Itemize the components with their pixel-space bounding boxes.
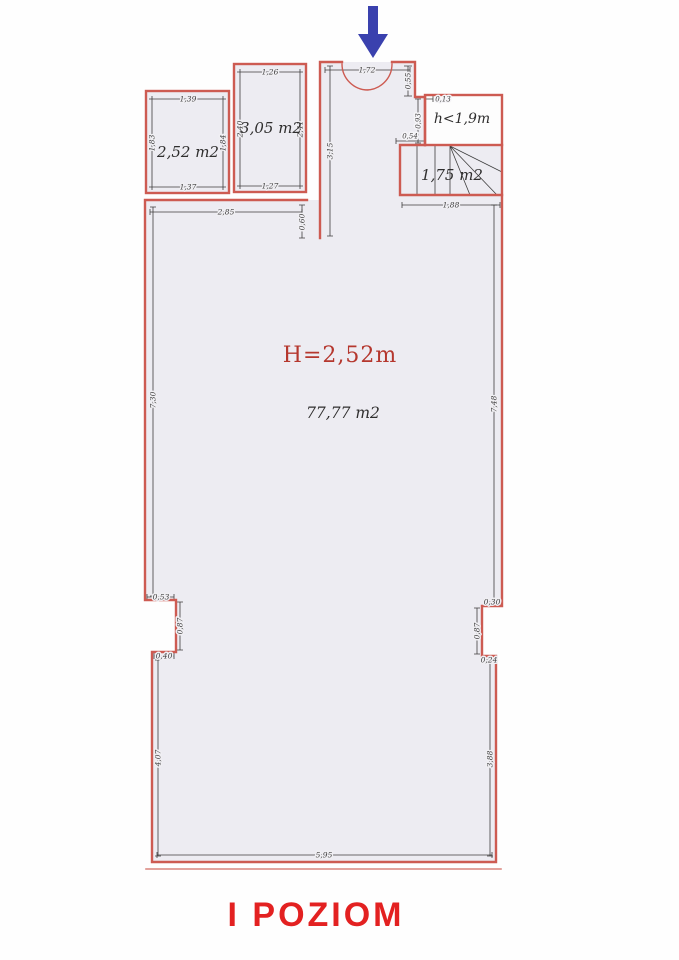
dimension-label: 1,39 — [180, 95, 197, 104]
dimension-label: 0,24 — [481, 656, 498, 665]
dimension-label: 1,26 — [262, 68, 279, 77]
dimension-label: 0,53 — [153, 593, 170, 602]
room-305-area-label: 3,05 m2 — [240, 119, 302, 137]
room-252-floor — [146, 91, 229, 193]
dimension-label: 0,30 — [484, 598, 501, 607]
dimension-label: 0,13 — [435, 96, 451, 104]
dimension-label: 0,87 — [176, 617, 185, 634]
dimension-label: 2,85 — [217, 208, 235, 217]
ceiling-height-label: H=2,52m — [283, 343, 397, 368]
attic-height-label: h<1,9m — [434, 111, 490, 127]
scanned-floor-plan-page: 1,39 1,37 1,83 1,84 1,26 1,27 2,40 2,41 … — [0, 0, 679, 960]
dimension-label: 1,88 — [443, 201, 460, 210]
dimension-label: 3,88 — [486, 750, 495, 767]
dimension-label: 0,87 — [473, 622, 482, 639]
dimension-label: 0,93 — [415, 113, 423, 129]
dimension-label: 3,15 — [326, 142, 335, 159]
dimension-label: 5,95 — [316, 851, 333, 860]
dimension-label: 1,84 — [219, 134, 228, 151]
stairs-area-label: 1,75 m2 — [421, 166, 483, 184]
room-252-area-label: 2,52 m2 — [156, 143, 219, 161]
page-title: I POZIOM — [228, 896, 405, 934]
dimension-label: 0,54 — [402, 133, 418, 141]
dimension-label: 0,55 — [404, 72, 413, 89]
dimension-label: 1,83 — [148, 134, 157, 151]
dimension-label: 1,72 — [359, 66, 376, 75]
main-area-label: 77,77 m2 — [306, 404, 380, 422]
dimension-label: 0,40 — [156, 652, 173, 661]
dimension-label: 0,60 — [298, 213, 307, 230]
entrance-arrow-icon — [358, 6, 388, 58]
dimension-label: 7,48 — [490, 395, 499, 412]
floor-plan-svg: 1,39 1,37 1,83 1,84 1,26 1,27 2,40 2,41 … — [0, 0, 679, 960]
dimension-label: 7,30 — [149, 391, 158, 408]
dimension-label: 1,27 — [262, 182, 279, 191]
dimension-label: 4,07 — [154, 749, 163, 767]
dimension-label: 1,37 — [180, 183, 197, 192]
